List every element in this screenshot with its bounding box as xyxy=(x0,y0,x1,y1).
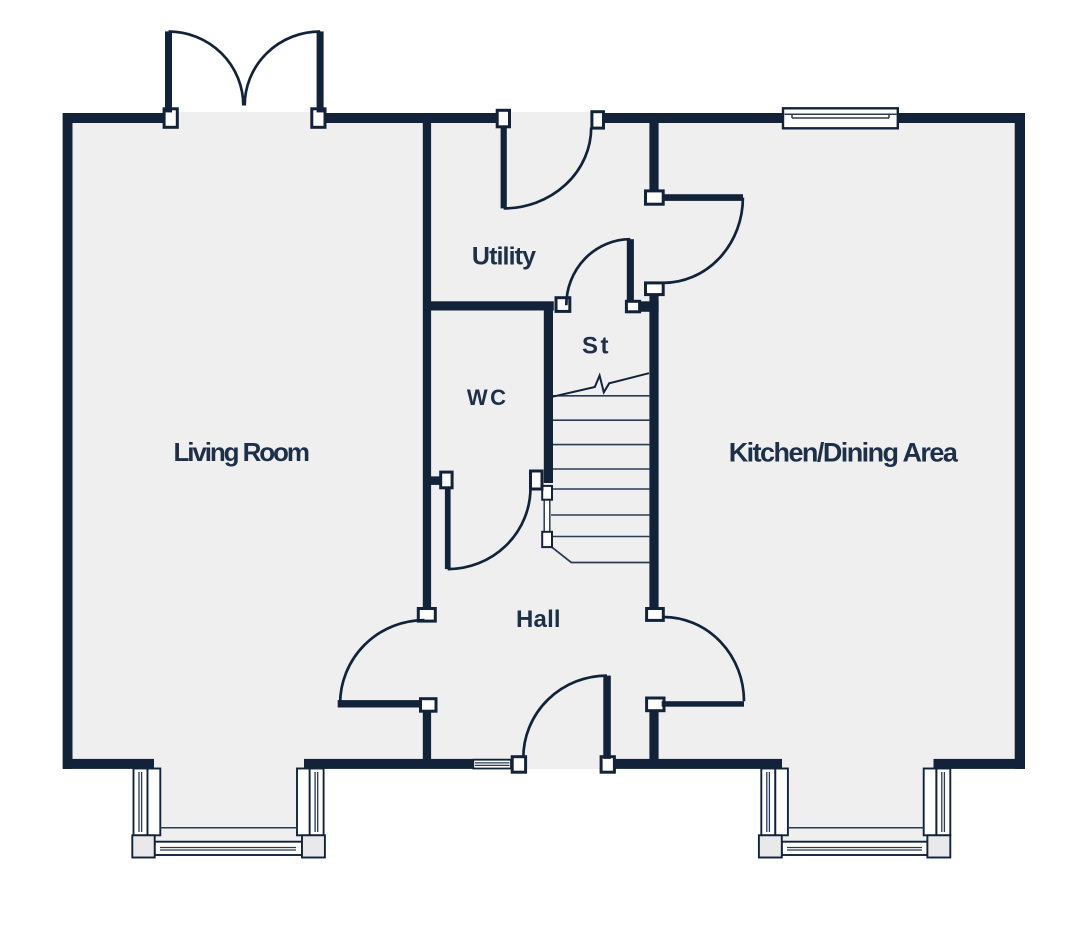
svg-text:Kitchen/Dining Area: Kitchen/Dining Area xyxy=(729,437,959,467)
svg-text:WC: WC xyxy=(467,385,509,410)
svg-text:Hall: Hall xyxy=(516,606,561,633)
svg-text:Living Room: Living Room xyxy=(174,437,309,467)
svg-text:St: St xyxy=(582,333,611,360)
svg-text:Utility: Utility xyxy=(472,242,536,270)
